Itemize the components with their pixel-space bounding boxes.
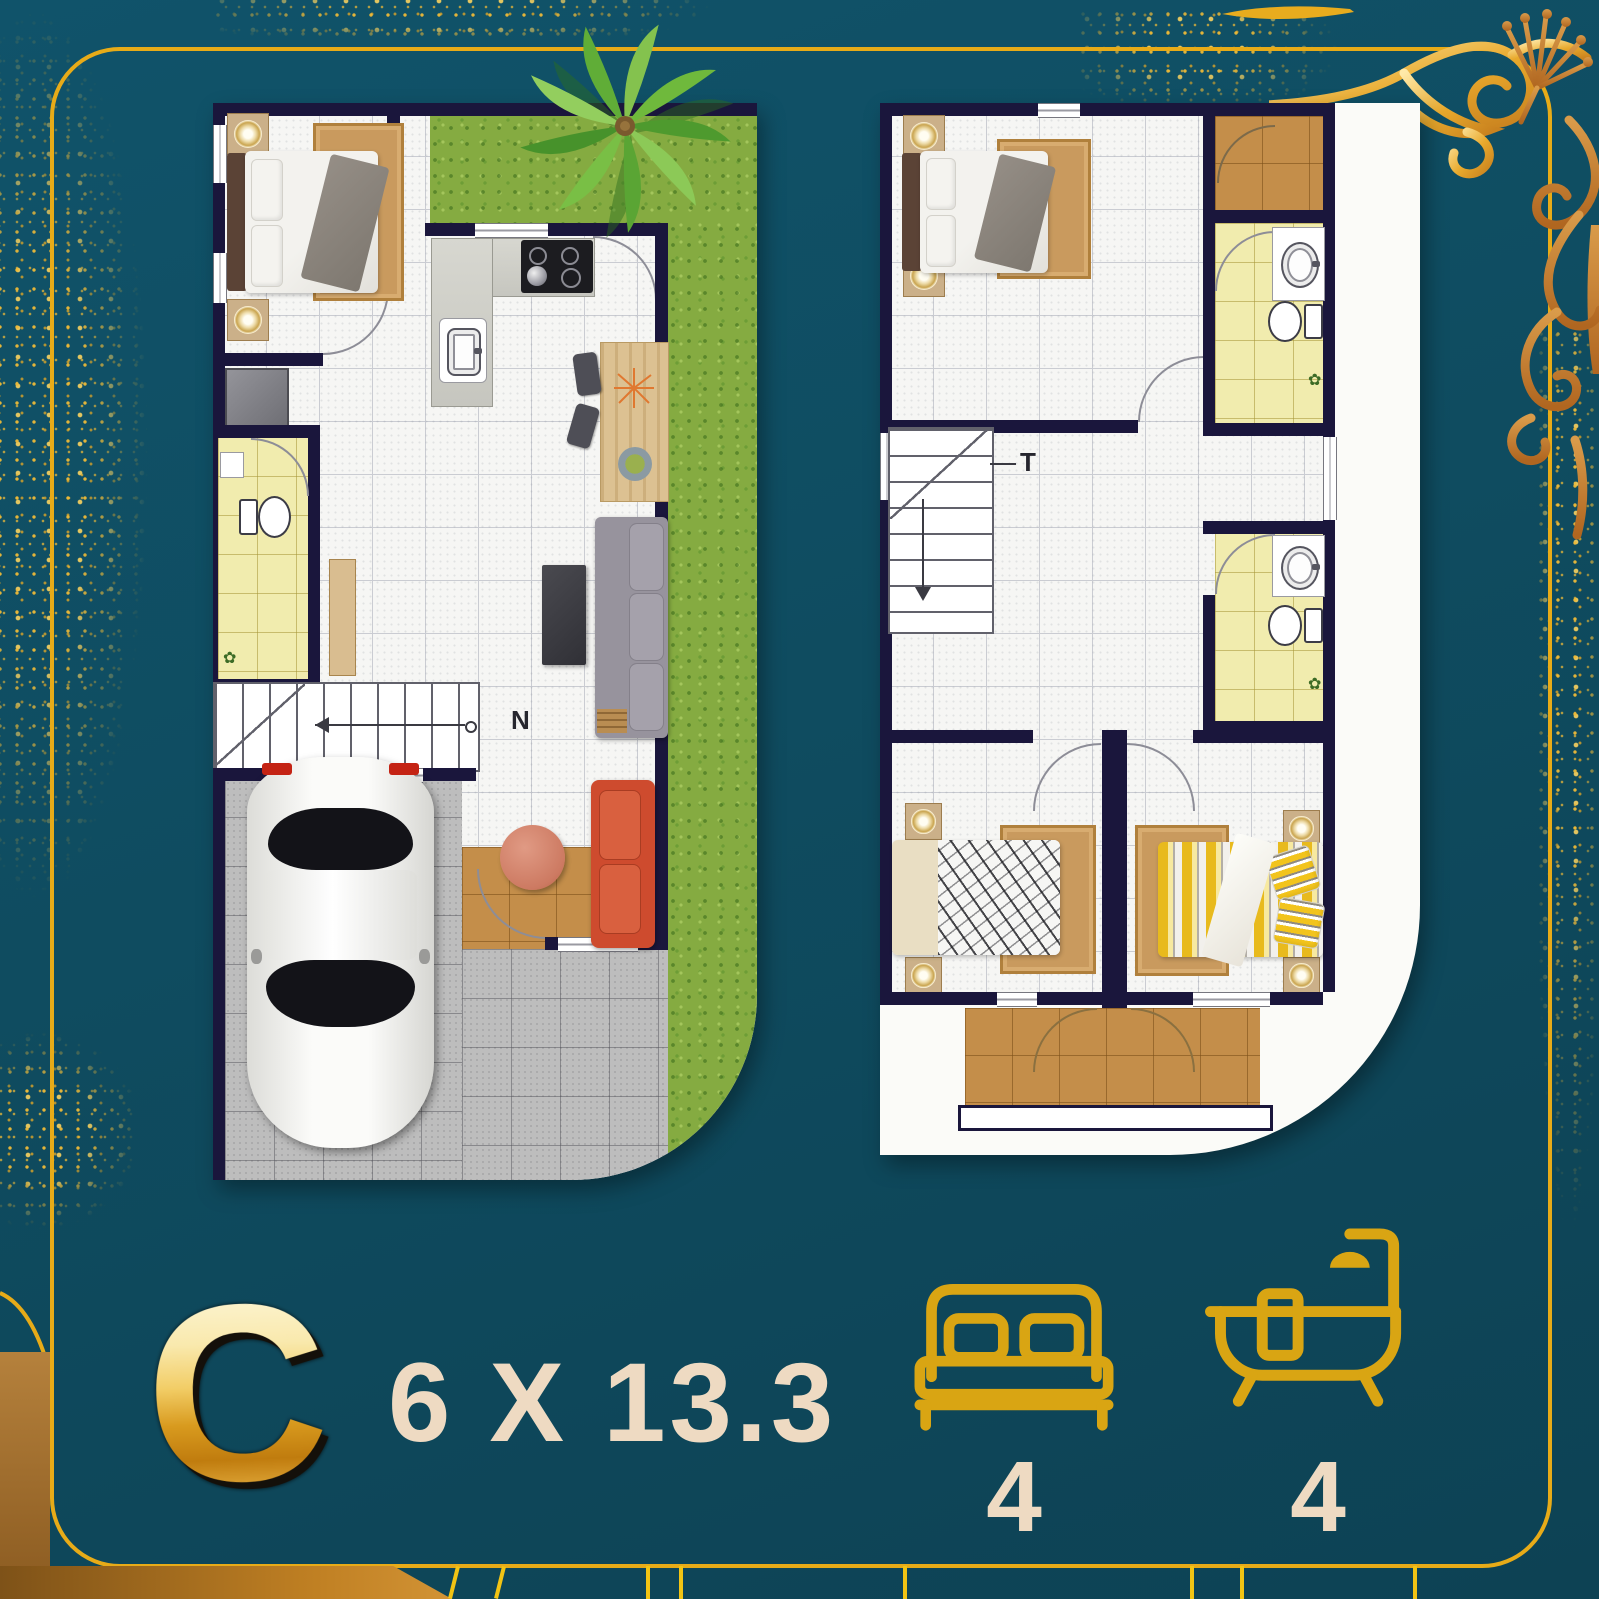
sink-counter [1272, 227, 1325, 301]
window [213, 253, 227, 303]
toilet [1268, 607, 1323, 644]
single-bed [1158, 842, 1323, 957]
skyline-line [1240, 1566, 1244, 1599]
nightstand [227, 299, 269, 341]
bronze-corner-fill [0, 1352, 50, 1599]
pillow [926, 215, 956, 267]
window [213, 125, 227, 183]
washbasin [220, 452, 244, 478]
bed-headboard [902, 153, 922, 271]
nightstand [905, 803, 942, 840]
bathtub-icon [1198, 1224, 1438, 1433]
coffee-table [542, 565, 586, 665]
bathroom-wall [1203, 223, 1215, 433]
window [1038, 103, 1080, 118]
stove [521, 240, 593, 293]
sink-counter [1272, 535, 1325, 597]
label-tick [990, 463, 1016, 465]
driveway [462, 949, 668, 1180]
bathroom-wall [213, 425, 320, 438]
balcony-railing [958, 1105, 1273, 1131]
nightstand [227, 113, 269, 155]
gray-sofa [595, 517, 668, 738]
stair-direction-label: T [1020, 447, 1036, 478]
skyline-line [679, 1566, 683, 1599]
pillow [926, 158, 956, 210]
window [1193, 992, 1270, 1007]
ground-floor-plan: ✿ N [213, 103, 757, 1180]
skyline-line [494, 1566, 506, 1599]
poster-canvas: ✿ N [0, 0, 1599, 1599]
wall [880, 103, 1335, 116]
unit-type-letter: C [142, 1265, 333, 1523]
fruit-plate [618, 447, 652, 481]
bathroom-wall [1203, 521, 1335, 534]
wall [1193, 730, 1335, 743]
window [997, 992, 1037, 1007]
bedroom-count: 4 [986, 1447, 1042, 1547]
staircase [888, 427, 994, 634]
console-table [329, 559, 356, 676]
toilet [237, 498, 291, 536]
palm-tree [518, 8, 733, 238]
nightstand [1283, 957, 1320, 994]
wall [1102, 730, 1127, 743]
cabinet [225, 368, 289, 429]
bronze-wedge [0, 1566, 452, 1599]
bottom-skyline-decoration [0, 1566, 1599, 1599]
table-centerpiece [611, 365, 657, 411]
wall [1203, 210, 1335, 223]
window [1323, 437, 1337, 520]
wall [1203, 103, 1215, 210]
bathroom-wall [1203, 423, 1335, 436]
kitchen-sink [439, 318, 487, 383]
bedroom-feature: 4 [888, 1268, 1140, 1547]
skyline-line [903, 1566, 907, 1599]
upper-floor-plan: ✿ ✿ T [880, 103, 1420, 1155]
single-bed [892, 840, 1060, 955]
plant-icon: ✿ [1308, 373, 1321, 389]
round-side-table [500, 825, 565, 890]
unit-dimensions: 6 X 13.3 [388, 1338, 837, 1467]
wall [880, 730, 1033, 743]
side-grass-strip [668, 222, 757, 1180]
red-sofa [591, 780, 655, 948]
toilet [1268, 303, 1323, 340]
stair-direction-label: N [511, 705, 530, 736]
door-arc [593, 236, 657, 300]
skyline-line [1190, 1566, 1194, 1599]
skyline-line [448, 1566, 460, 1599]
bed-icon [899, 1268, 1129, 1433]
bedroom-wall [213, 353, 323, 366]
pillow [251, 159, 283, 221]
skyline-line [1413, 1566, 1417, 1599]
skyline-line [646, 1566, 650, 1599]
dining-chair [566, 403, 601, 450]
plant-icon: ✿ [223, 651, 236, 667]
bathroom-feature: 4 [1188, 1224, 1448, 1547]
plant-icon: ✿ [1308, 677, 1321, 693]
bathroom-wall [1203, 595, 1215, 734]
nightstand [905, 957, 942, 994]
pillow [251, 225, 283, 287]
bathroom-wall [308, 437, 320, 692]
bed-headboard [227, 153, 247, 291]
lower-balcony [965, 1008, 1260, 1105]
car [247, 757, 434, 1148]
bathroom-count: 4 [1290, 1447, 1346, 1547]
dining-chair [572, 352, 602, 397]
